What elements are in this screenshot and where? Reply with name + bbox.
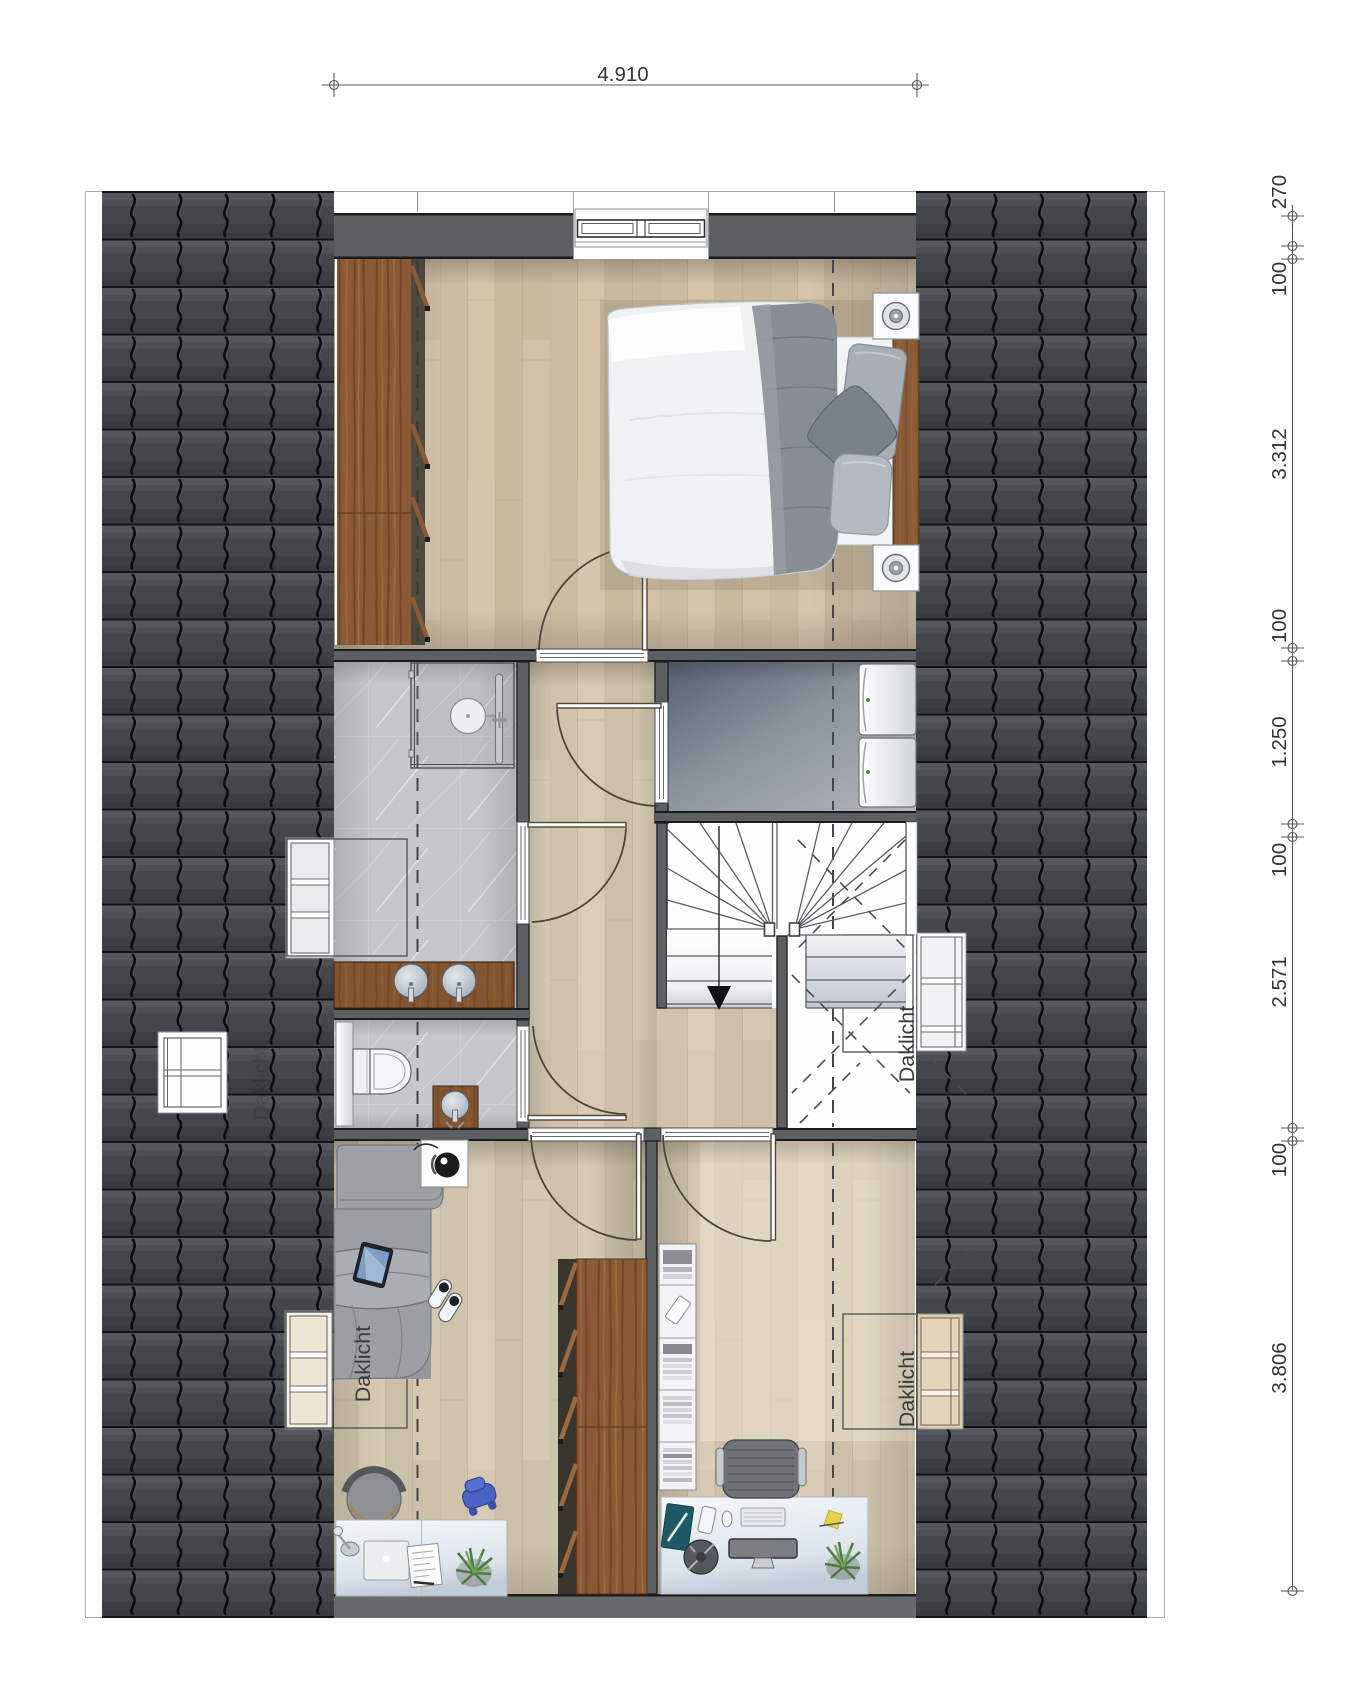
svg-text:3.312: 3.312 (1268, 428, 1291, 479)
svg-text:Daklicht: Daklicht (895, 1351, 919, 1427)
svg-text:1.250: 1.250 (1268, 716, 1291, 767)
svg-text:2.571: 2.571 (1268, 956, 1291, 1007)
svg-text:4.910: 4.910 (597, 63, 648, 86)
svg-text:100: 100 (1268, 843, 1291, 877)
svg-text:Daklicht: Daklicht (351, 1326, 375, 1402)
svg-text:3.806: 3.806 (1268, 1342, 1291, 1393)
svg-text:Daklicht: Daklicht (895, 1006, 919, 1082)
svg-text:100: 100 (1268, 1143, 1291, 1177)
svg-text:100: 100 (1268, 609, 1291, 643)
svg-text:100: 100 (1268, 262, 1291, 296)
svg-text:270: 270 (1268, 175, 1291, 209)
svg-text:Daklicht: Daklicht (250, 1045, 273, 1120)
